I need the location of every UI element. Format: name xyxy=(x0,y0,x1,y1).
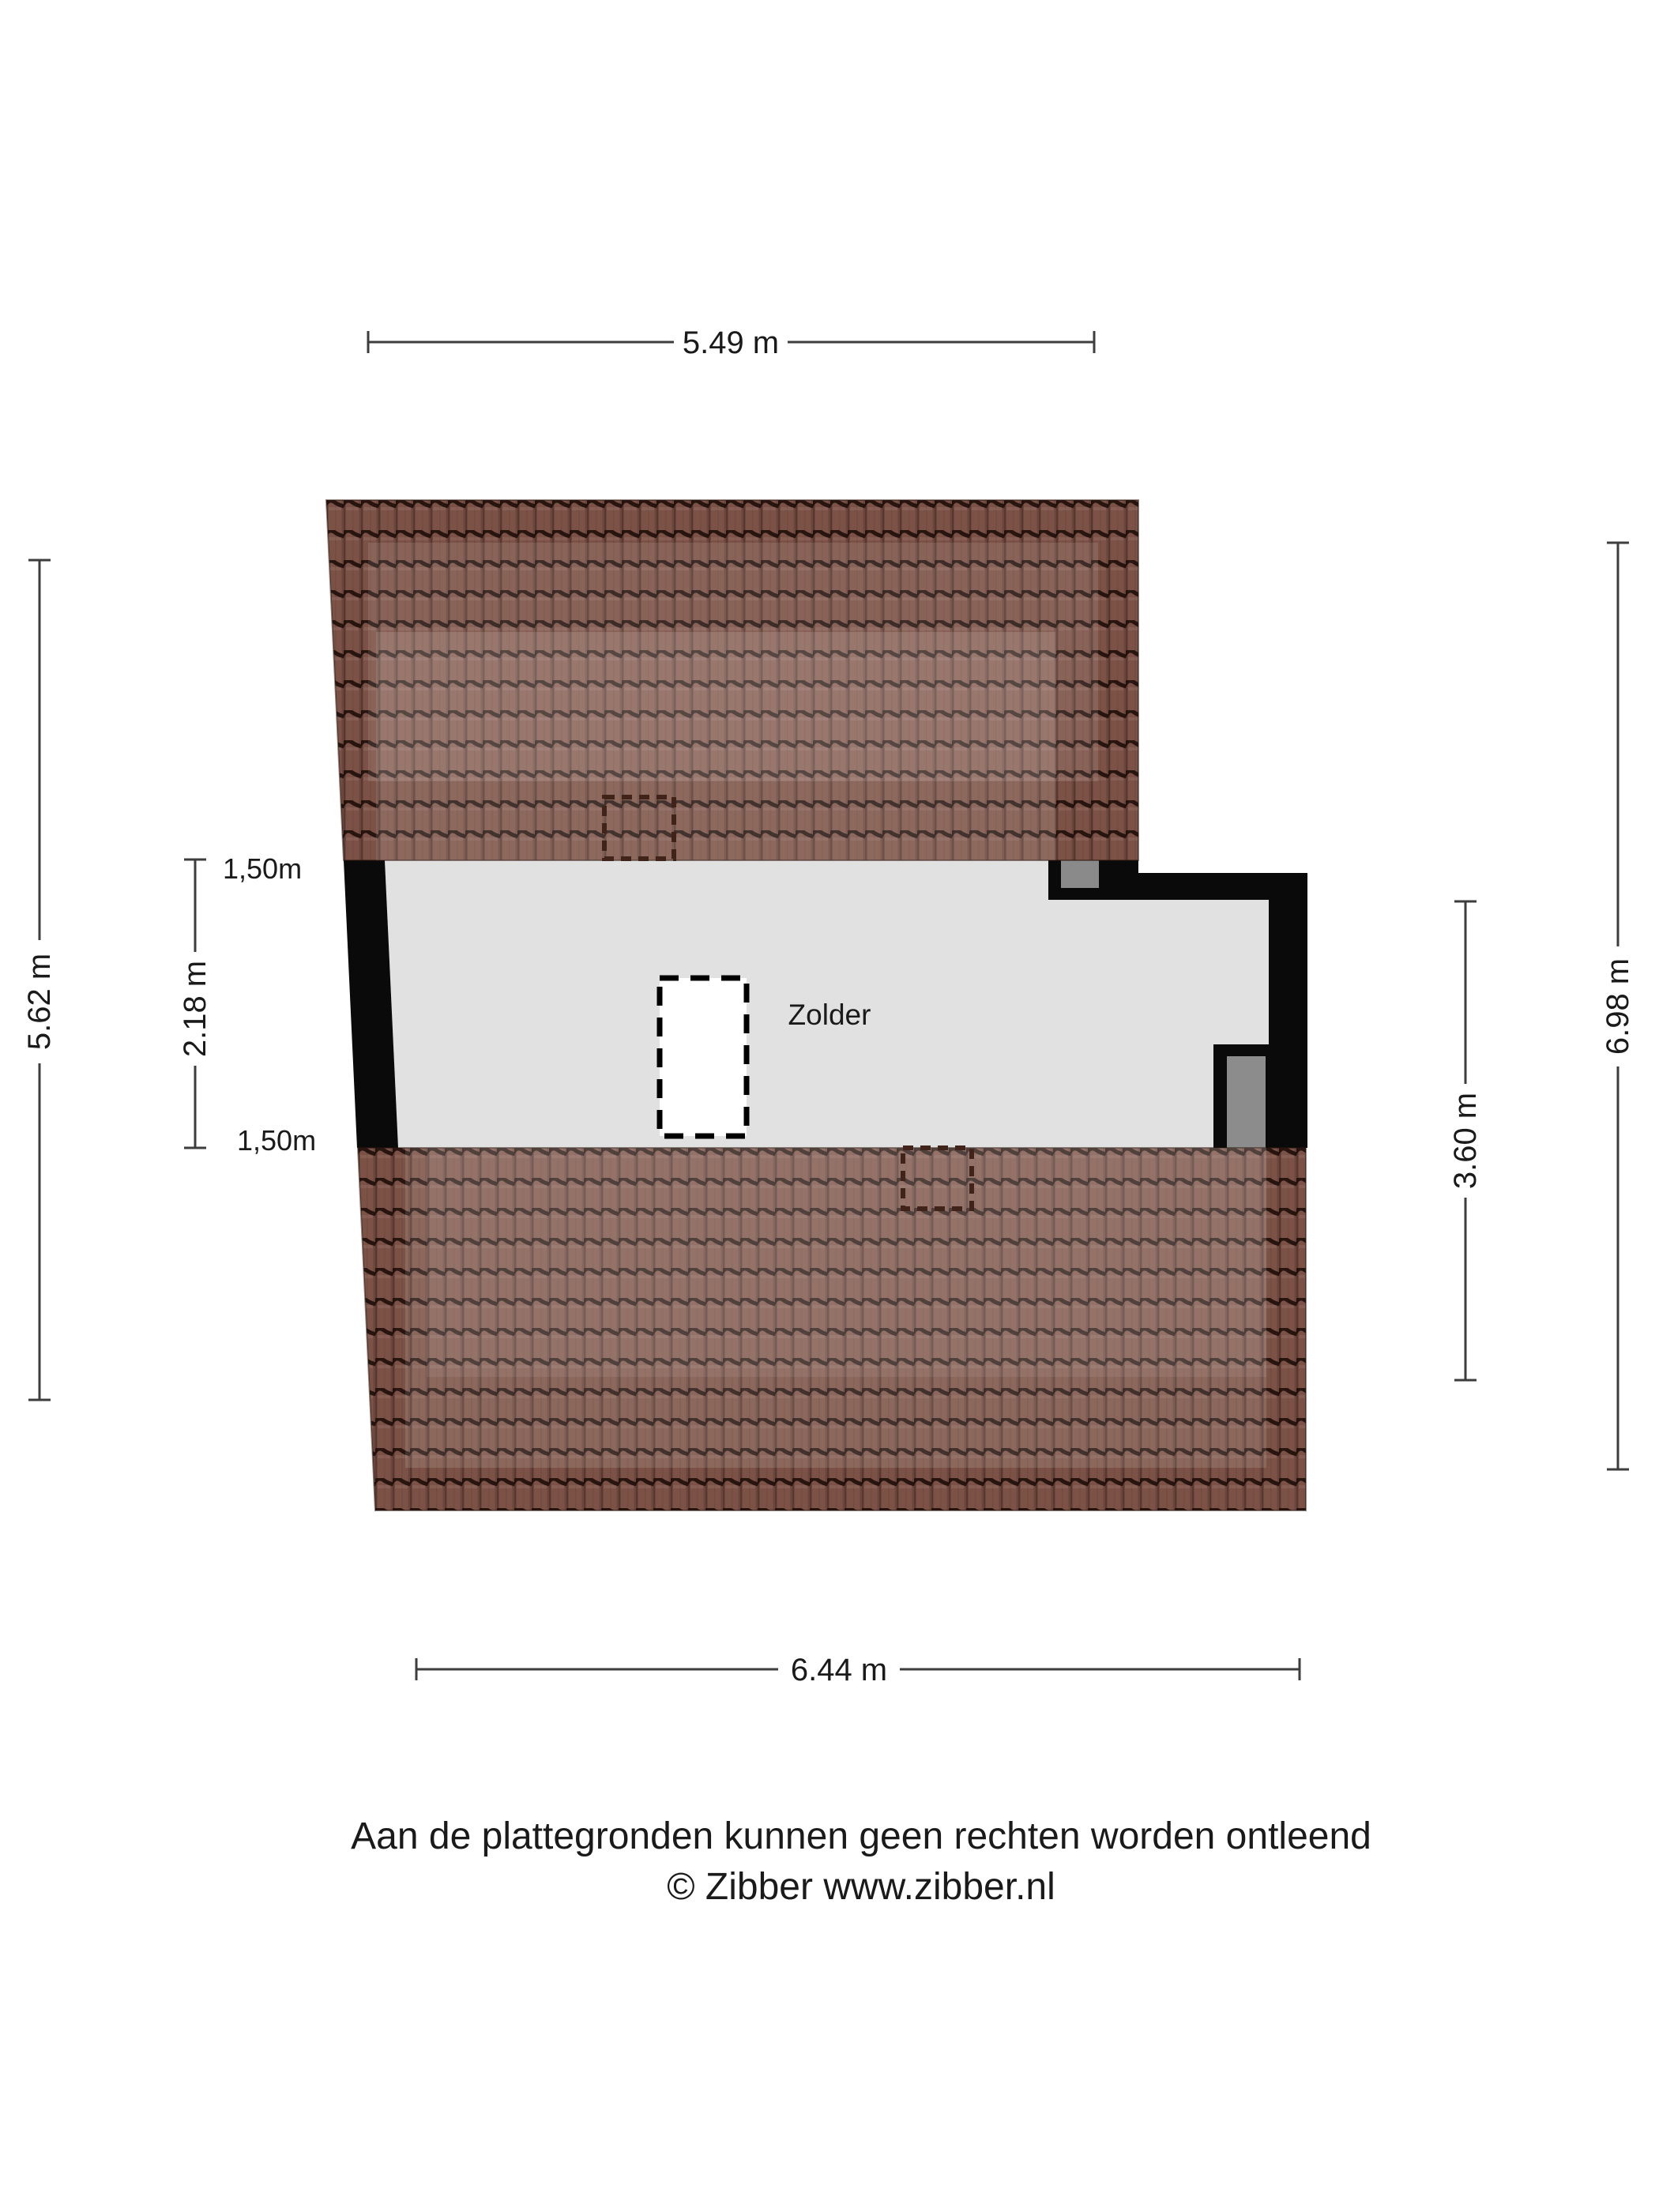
dimension-left-inner-label: 2.18 m xyxy=(178,961,213,1057)
roof-slope-top xyxy=(326,500,1138,860)
headroom-label-bottom: 1,50m xyxy=(237,1124,316,1157)
roof-bottom-highlight-inner xyxy=(427,1148,1266,1377)
door-leaf xyxy=(1227,1056,1266,1148)
floor-plan-canvas: Zolder 5.49 m 6.44 m 5.62 m 2.18 m 1,50m… xyxy=(0,0,1659,2212)
dimension-top-label: 5.49 m xyxy=(683,325,779,360)
dimension-bottom-label: 6.44 m xyxy=(791,1653,887,1687)
dimension-left-outer-label: 5.62 m xyxy=(22,954,57,1050)
dimension-right-outer-label: 6.98 m xyxy=(1601,958,1635,1055)
chimney-block xyxy=(1061,860,1099,888)
headroom-label-top: 1,50m xyxy=(223,852,302,885)
disclaimer-line-2: © Zibber www.zibber.nl xyxy=(667,1866,1055,1908)
roof-top-highlight-inner xyxy=(376,632,1055,860)
dimension-right-outer: 6.98 m xyxy=(1601,543,1635,1469)
disclaimer-line-1: Aan de plattegronden kunnen geen rechten… xyxy=(351,1815,1371,1857)
dimension-left-inner: 2.18 m xyxy=(178,860,213,1148)
dimension-left-outer: 5.62 m xyxy=(22,560,57,1400)
room-label: Zolder xyxy=(788,999,871,1031)
dimension-right-inner-label: 3.60 m xyxy=(1448,1093,1483,1189)
dimension-bottom: 6.44 m xyxy=(416,1653,1300,1687)
dimension-top: 5.49 m xyxy=(368,325,1094,360)
floor-plan-page: Zolder 5.49 m 6.44 m 5.62 m 2.18 m 1,50m… xyxy=(0,0,1659,2212)
dimension-right-inner: 3.60 m xyxy=(1448,901,1483,1380)
roof-slope-bottom xyxy=(358,1148,1306,1510)
stair-opening-dashed xyxy=(660,978,747,1136)
